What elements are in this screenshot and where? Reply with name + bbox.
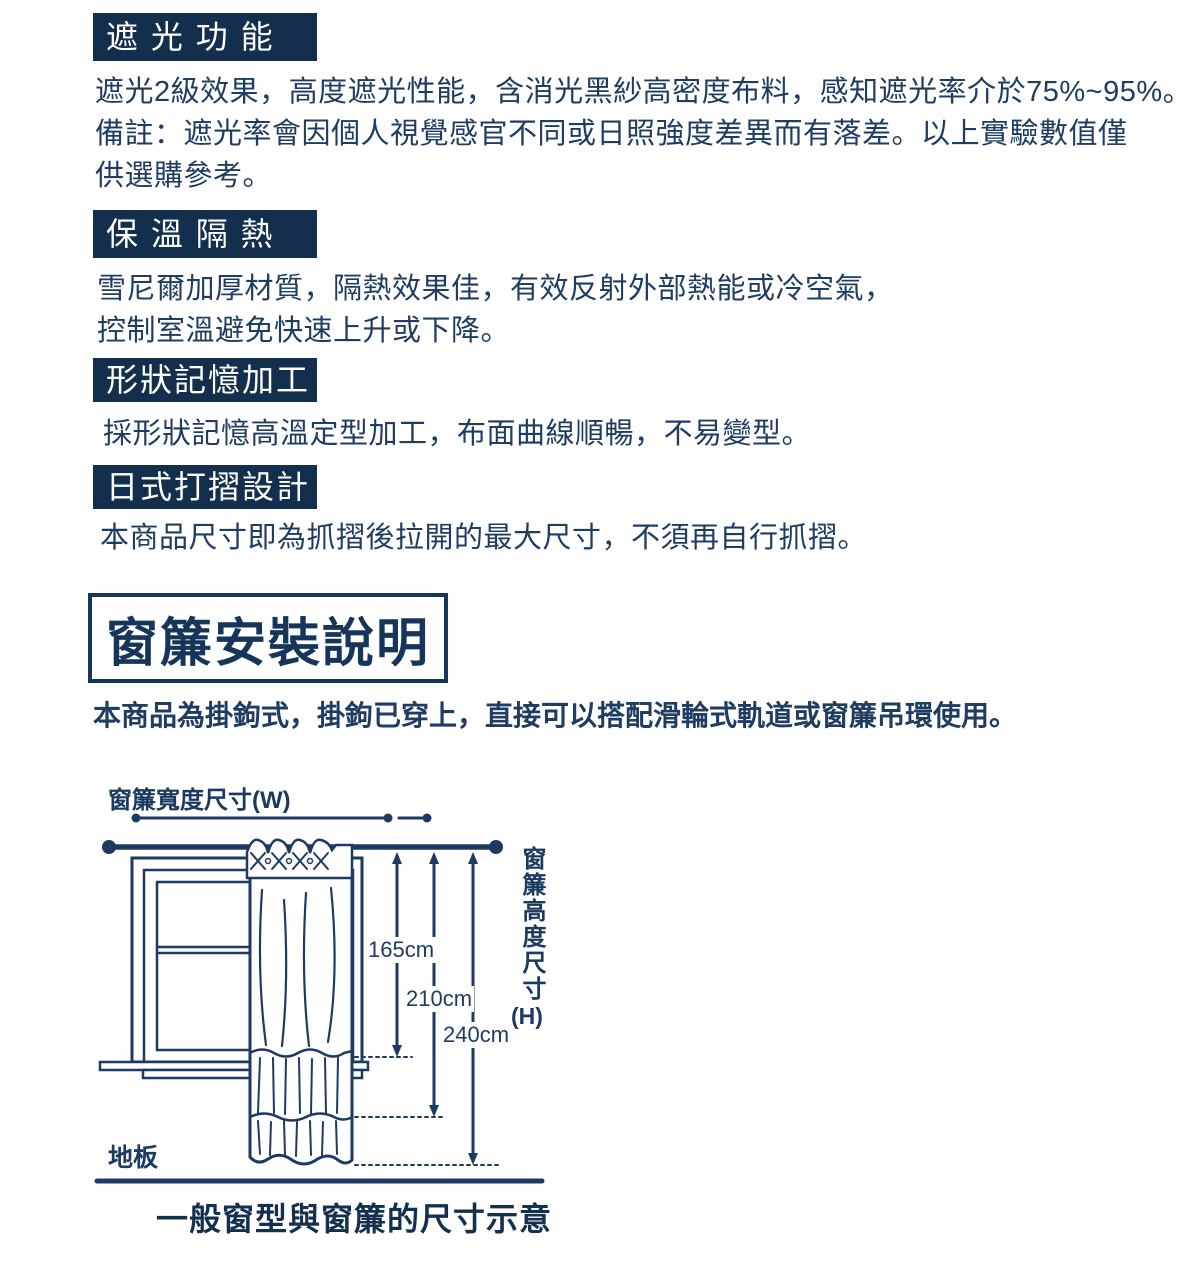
measurement-240cm: 240cm (441, 1022, 511, 1048)
install-description: 本商品為掛鉤式，掛鉤已穿上，直接可以搭配滑輪式軌道或窗簾吊環使用。 (93, 694, 1017, 734)
diagram-caption: 一般窗型與窗簾的尺寸示意 (156, 1194, 552, 1240)
dashed-level-lines (355, 1057, 502, 1165)
curtain-size-diagram (85, 770, 565, 1250)
section-body-insulation: 雪尼爾加厚材質，隔熱效果佳，有效反射外部熱能或冷空氣， 控制室溫避免快速上升或下… (97, 268, 1197, 352)
section-header-insulation: 保 溫 隔 熱 (93, 210, 317, 258)
install-title: 窗簾安裝說明 (106, 601, 430, 676)
curtain (247, 840, 352, 1164)
measurement-210cm: 210cm (404, 986, 474, 1012)
section-body-shape-memory: 採形狀記憶高溫定型加工，布面曲線順暢，不易變型。 (103, 413, 1200, 455)
height-dimension-label: 窗簾高度尺寸 (514, 846, 549, 1002)
section-body-blackout: 遮光2級效果，高度遮光性能，含消光黑紗高密度布料，感知遮光率介於75%~95%。… (95, 71, 1195, 197)
product-description-page: 遮 光 功 能 遮光2級效果，高度遮光性能，含消光黑紗高密度布料，感知遮光率介於… (0, 0, 1200, 1283)
install-title-box: 窗簾安裝說明 (88, 593, 448, 683)
floor-label: 地板 (108, 1138, 158, 1174)
width-dimension-label: 窗簾寬度尺寸(W) (108, 780, 291, 815)
measurement-165cm: 165cm (366, 937, 436, 963)
section-header-blackout: 遮 光 功 能 (93, 13, 317, 61)
height-unit-label: (H) (511, 1003, 543, 1030)
section-body-pleat-design: 本商品尺寸即為抓摺後拉開的最大尺寸，不須再自行抓摺。 (100, 517, 1200, 559)
section-header-pleat-design: 日式打摺設計 (93, 465, 317, 509)
section-header-shape-memory: 形狀記憶加工 (93, 358, 317, 402)
